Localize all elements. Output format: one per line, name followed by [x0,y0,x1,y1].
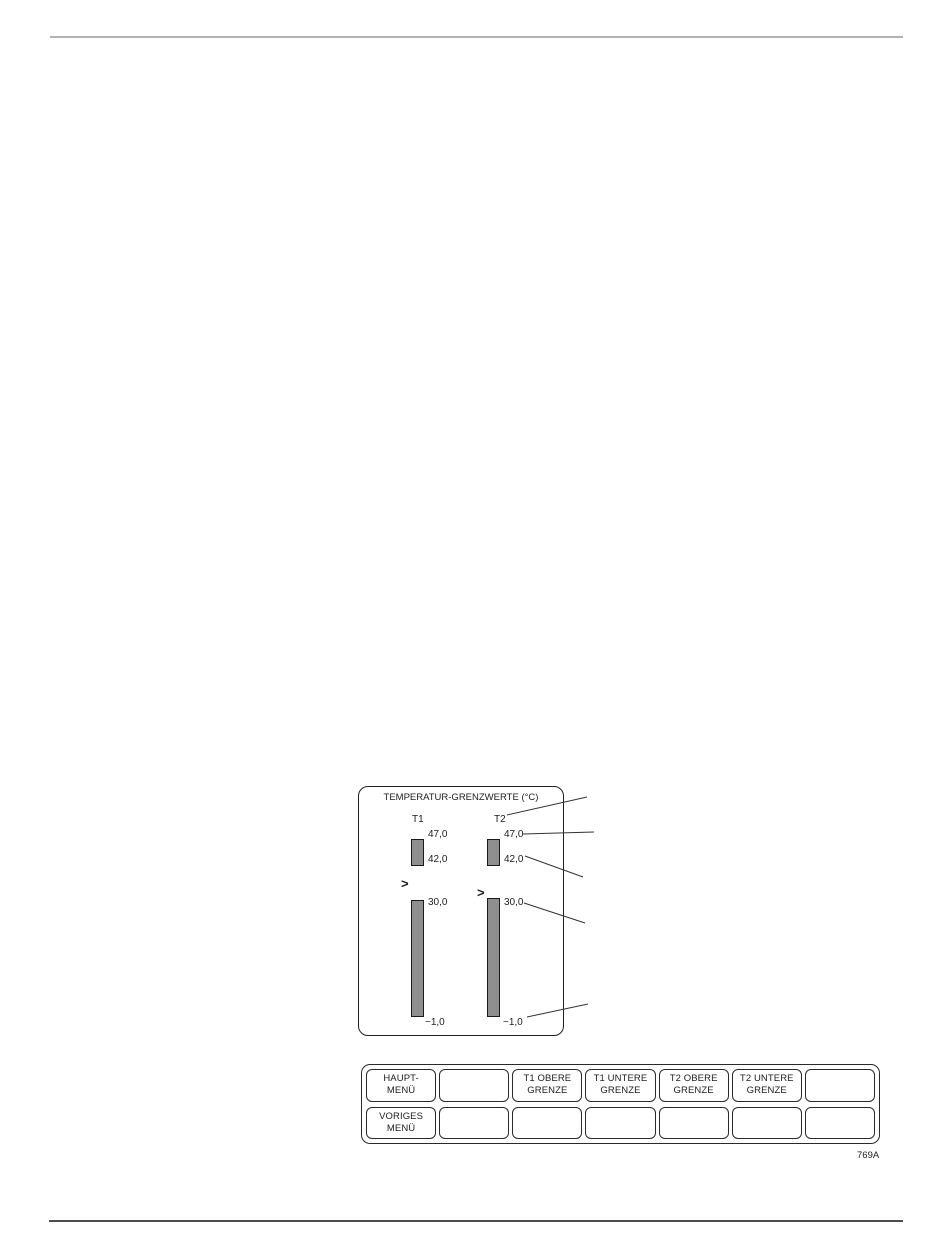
softkey-blank-r2c6[interactable] [732,1107,802,1140]
manual-page: TEMPERATUR-GRENZWERTE (°C) T1 47,0 42,0 … [0,0,950,1257]
t2-upper-band-bar [487,839,500,866]
page-header-rule [50,36,903,38]
t1-upper-band-bar [411,839,424,866]
t2-upper-limit-value: 47,0 [504,830,523,840]
softkey-haupt-menu[interactable]: HAUPT- MENÜ [366,1069,436,1102]
t2-range-bar [487,898,500,1017]
t1-over-range-indicator: > [401,877,409,890]
t1-upper-limit-value: 47,0 [428,830,447,840]
t1-lower-limit-value: 42,0 [428,855,447,865]
softkey-t1-untere-grenze[interactable]: T1 UNTERE GRENZE [585,1069,655,1102]
t1-range-bar [411,900,424,1017]
t2-lower-limit-value: 42,0 [504,855,523,865]
softkey-blank-r2c4[interactable] [585,1107,655,1140]
t2-channel-label: T2 [494,815,506,825]
t1-channel-label: T1 [412,815,424,825]
figure-number: 769A [857,1151,879,1161]
softkey-blank-r1c7[interactable] [805,1069,875,1102]
softkey-blank-r2c7[interactable] [805,1107,875,1140]
softkey-t2-untere-grenze[interactable]: T2 UNTERE GRENZE [732,1069,802,1102]
softkey-blank-r1c2[interactable] [439,1069,509,1102]
softkey-blank-r2c3[interactable] [512,1107,582,1140]
display-title: TEMPERATUR-GRENZWERTE (°C) [359,793,563,803]
t2-range-max-value: 30,0 [504,898,523,908]
softkey-panel: HAUPT- MENÜ T1 OBERE GRENZE T1 UNTERE GR… [361,1064,880,1144]
temperature-display-panel: TEMPERATUR-GRENZWERTE (°C) T1 47,0 42,0 … [358,786,564,1036]
t2-range-min-value: −1,0 [503,1018,523,1028]
page-footer-rule [49,1220,903,1222]
softkey-voriges-menu[interactable]: VORIGES MENÜ [366,1107,436,1140]
t2-over-range-indicator: > [477,886,485,899]
t1-range-min-value: −1,0 [425,1018,445,1028]
softkey-t1-obere-grenze[interactable]: T1 OBERE GRENZE [512,1069,582,1102]
softkey-blank-r2c2[interactable] [439,1107,509,1140]
softkey-t2-obere-grenze[interactable]: T2 OBERE GRENZE [659,1069,729,1102]
softkey-blank-r2c5[interactable] [659,1107,729,1140]
t1-range-max-value: 30,0 [428,898,447,908]
